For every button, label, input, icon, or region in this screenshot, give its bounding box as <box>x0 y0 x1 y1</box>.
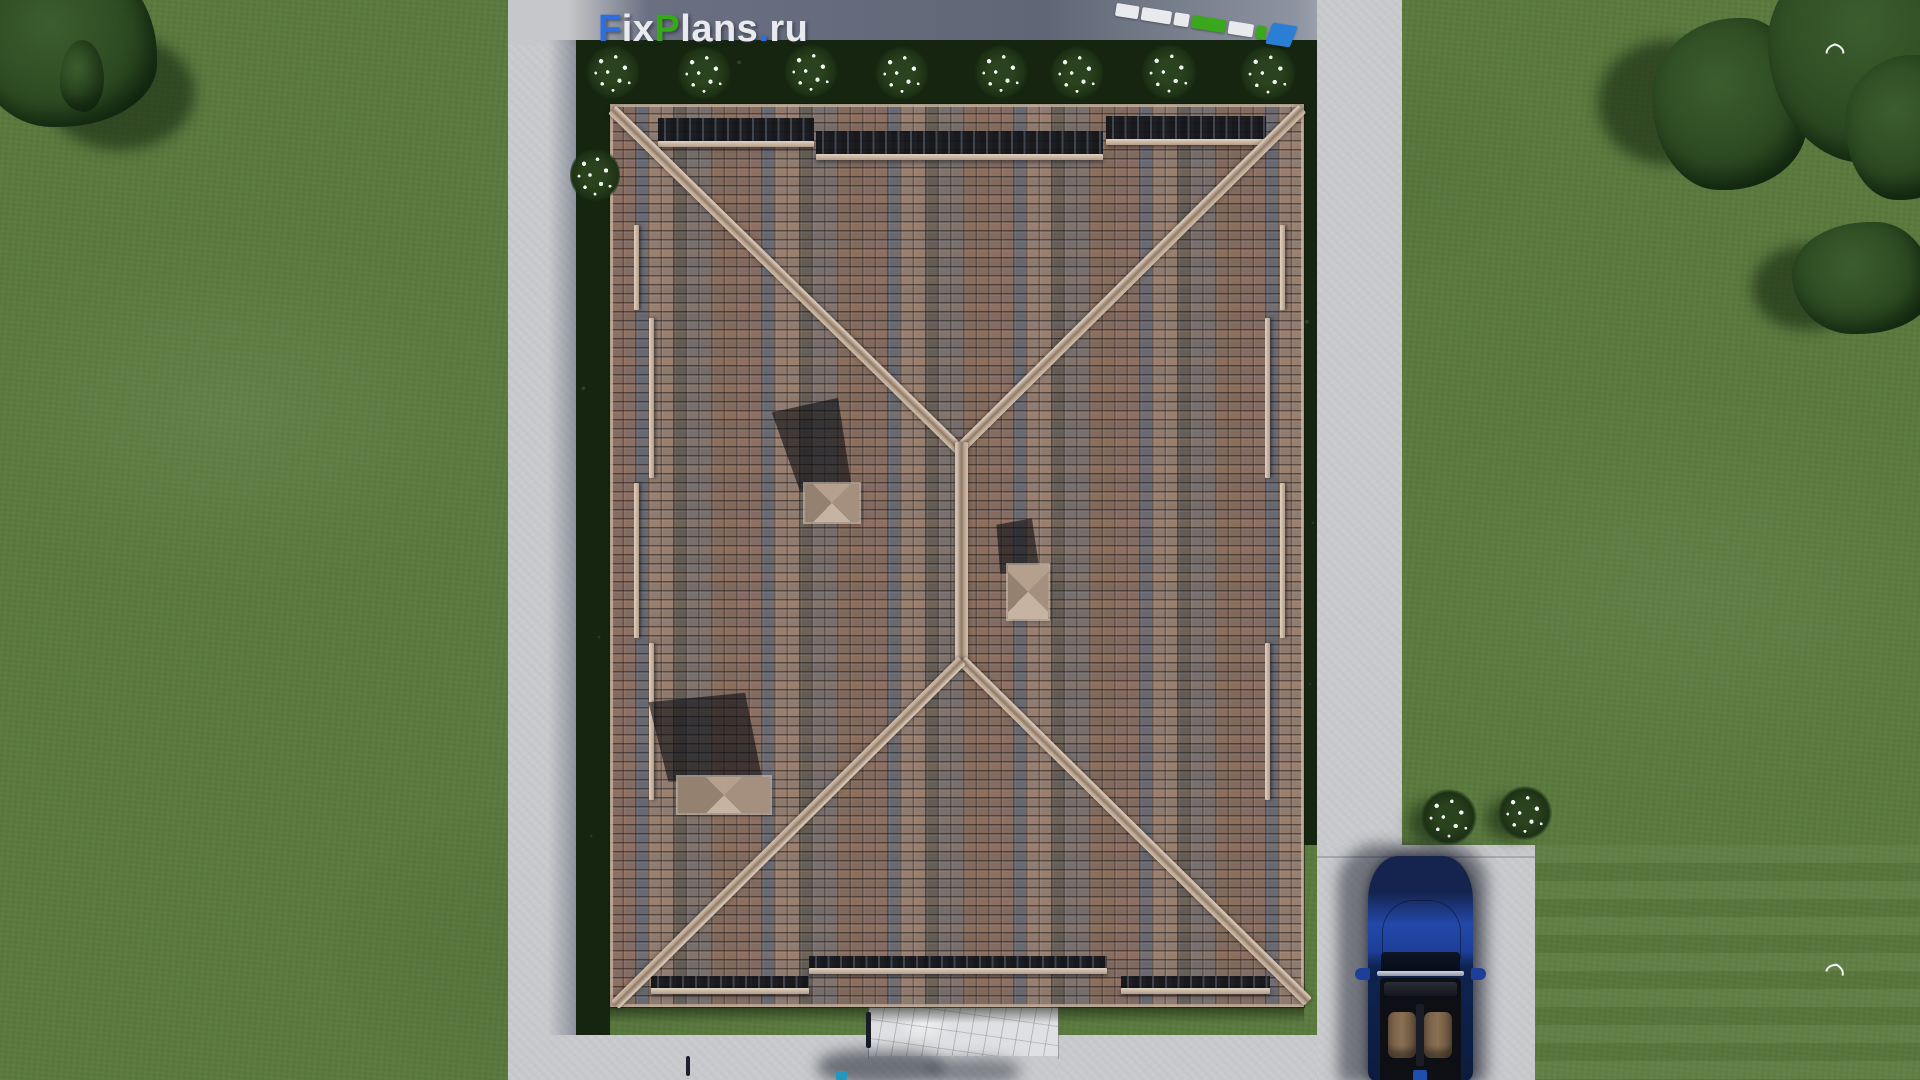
snow-guard-bar <box>816 154 1103 160</box>
snow-guard-bar <box>651 988 809 994</box>
hedge-shadow-on-path <box>548 40 576 1035</box>
car-seat-left <box>1388 1012 1416 1058</box>
car-mirror-left <box>1355 968 1370 980</box>
snow-guard-bar <box>1106 139 1266 145</box>
bird-icon <box>1825 42 1843 52</box>
walkway-post <box>866 1012 871 1048</box>
snow-guard-bar-vertical <box>649 318 654 478</box>
car-hood-seam <box>1382 900 1461 959</box>
flowering-bush <box>974 45 1028 99</box>
watermark-segment: P <box>654 8 680 50</box>
eave-shadow-row <box>1106 116 1266 139</box>
chimney-shadow <box>646 688 764 782</box>
blue-ornament <box>836 1071 847 1080</box>
snow-guard-bar-vertical <box>1280 225 1285 310</box>
hedge-right-strip <box>1304 40 1317 845</box>
snow-guard-bar <box>809 968 1107 974</box>
flowering-bush <box>1050 46 1104 100</box>
car-seat-right <box>1424 1012 1452 1058</box>
flowering-bush-driveway <box>1421 789 1477 845</box>
ruler-segment-white <box>1115 2 1140 19</box>
ruler-segment-green <box>1255 25 1267 39</box>
flowering-bush-driveway <box>1498 786 1552 840</box>
watermark-segment: lans <box>680 8 758 50</box>
watermark-segment: ix <box>622 8 655 50</box>
chimney-shadow <box>770 396 854 492</box>
chimney-cap <box>805 484 859 522</box>
flowering-bush <box>1141 44 1197 100</box>
eave-shadow-row <box>816 131 1103 154</box>
flowering-bush <box>677 46 731 100</box>
tree-sapling <box>60 40 104 112</box>
ruler-segment-white <box>1227 20 1254 37</box>
car-windshield-frame <box>1377 971 1464 976</box>
car-dashboard <box>1384 982 1457 996</box>
eave-shadow-row <box>1121 976 1270 988</box>
tree-canopy-right-edge <box>1792 222 1920 334</box>
hip-ridge-bottom-right <box>958 657 1312 1006</box>
snow-guard-bar <box>658 141 814 147</box>
car-rear-ornament <box>1413 1070 1427 1080</box>
flowering-bush <box>586 45 640 99</box>
eave-shadow-row <box>809 956 1107 968</box>
flowering-bush <box>1240 45 1296 101</box>
snow-guard-bar-vertical <box>1265 643 1270 800</box>
eave-shadow-row <box>658 118 814 141</box>
ruler-segment-green <box>1191 15 1226 33</box>
flowering-bush <box>875 46 929 100</box>
convertible-car <box>1368 856 1473 1080</box>
chimney-cap <box>678 777 770 813</box>
snow-guard-bar-vertical <box>1280 483 1285 638</box>
car-mirror-right <box>1471 968 1486 980</box>
car-cockpit <box>1380 978 1461 1080</box>
house-hip-roof <box>610 104 1304 1007</box>
ground-shadow-blob <box>928 1058 1020 1080</box>
flowering-bush <box>784 44 838 98</box>
eave-ground-shadow <box>610 1007 1304 1023</box>
snow-guard-bar-vertical <box>634 483 639 638</box>
snow-guard-bar <box>1121 988 1270 994</box>
watermark-logo: FixPlans.ru <box>598 8 808 51</box>
walkway-post <box>686 1056 690 1076</box>
watermark-segment: . <box>758 8 769 50</box>
watermark-segment: F <box>598 8 622 50</box>
ruler-segment-white <box>1141 7 1172 24</box>
eave-shadow-row <box>651 976 809 988</box>
chimney-cap <box>1008 565 1048 619</box>
main-ridge <box>955 442 968 667</box>
path-right-band <box>1317 0 1402 858</box>
mow-stripes <box>1535 845 1920 1080</box>
snow-guard-bar-vertical <box>1265 318 1270 478</box>
ruler-segment-white <box>1173 12 1190 27</box>
aerial-render-scene: FixPlans.ru <box>0 0 1920 1080</box>
snow-guard-bar-vertical <box>634 225 639 310</box>
watermark-segment: ru <box>769 8 808 50</box>
flowering-bush-left-edge <box>570 147 620 203</box>
car-center-console <box>1416 1004 1424 1066</box>
